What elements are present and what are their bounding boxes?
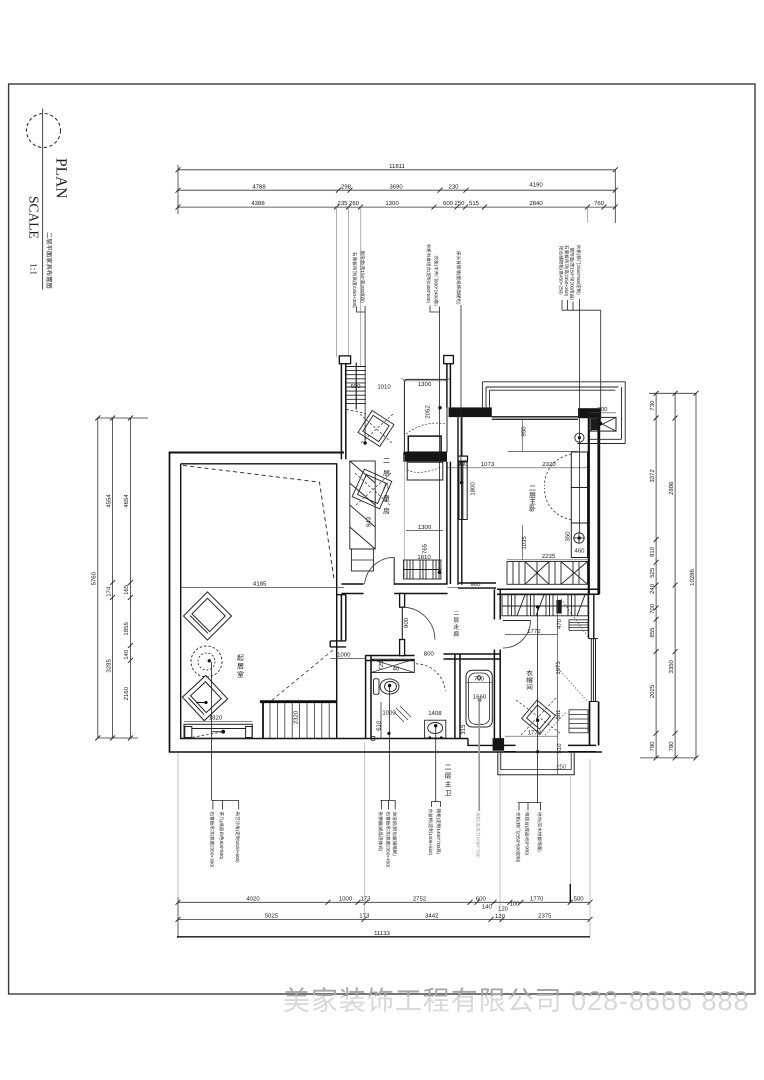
svg-text:350: 350	[564, 531, 571, 542]
svg-text:3350: 3350	[668, 659, 675, 673]
svg-text:120: 120	[498, 906, 509, 913]
svg-text:1000: 1000	[337, 652, 351, 659]
svg-text:梳妆台(成品450*900): 梳妆台(成品450*900)	[524, 812, 529, 856]
svg-text:10286: 10286	[689, 568, 696, 585]
svg-text:PLAN: PLAN	[53, 158, 70, 198]
svg-text:600: 600	[443, 200, 454, 207]
svg-text:2886: 2886	[668, 481, 675, 495]
svg-text:1820: 1820	[209, 715, 223, 722]
svg-text:900: 900	[403, 617, 410, 628]
svg-text:2052: 2052	[424, 405, 431, 419]
svg-text:二层平面家具布置图: 二层平面家具布置图	[45, 232, 53, 289]
svg-text:4654: 4654	[123, 494, 130, 508]
svg-text:250: 250	[556, 763, 567, 770]
svg-text:1300: 1300	[418, 381, 432, 388]
svg-text:298: 298	[341, 183, 352, 190]
svg-text:石膏板吊顶(高2350+350): 石膏板吊顶(高2350+350)	[564, 245, 569, 297]
svg-text:515: 515	[469, 200, 480, 207]
svg-text:床头背景墙(壁纸饰面硬包): 床头背景墙(壁纸饰面硬包)	[456, 251, 461, 305]
svg-text:900: 900	[470, 581, 481, 588]
svg-text:1408: 1408	[428, 710, 442, 717]
svg-text:镜柜(定制1408*700高): 镜柜(定制1408*700高)	[436, 809, 441, 855]
svg-text:衣柜(移门2550*600定制): 衣柜(移门2550*600定制)	[516, 812, 521, 863]
svg-text:茶几(成品白色800*800): 茶几(成品白色800*800)	[219, 812, 224, 860]
svg-text:240: 240	[649, 583, 656, 594]
svg-text:315: 315	[460, 724, 467, 735]
svg-text:460: 460	[574, 548, 585, 555]
svg-text:1300: 1300	[418, 524, 432, 531]
svg-text:石膏板吊顶(高度2350+300): 石膏板吊顶(高度2350+300)	[209, 812, 214, 868]
svg-text:二层主卫: 二层主卫	[445, 765, 452, 798]
svg-text:600: 600	[597, 406, 608, 413]
svg-text:3690: 3690	[389, 183, 403, 190]
svg-text:800: 800	[424, 651, 435, 658]
svg-text:2025: 2025	[649, 684, 656, 698]
svg-text:衣帽间: 衣帽间	[526, 670, 533, 692]
svg-text:1075: 1075	[555, 661, 562, 675]
svg-text:1035: 1035	[521, 536, 528, 550]
svg-text:610: 610	[375, 720, 382, 731]
svg-text:725: 725	[378, 660, 385, 671]
svg-text:书柜书桌组合(定制2300*600): 书柜书桌组合(定制2300*600)	[426, 244, 431, 304]
svg-text:4020: 4020	[246, 895, 260, 902]
svg-text:1:1: 1:1	[28, 263, 38, 275]
svg-text:台盆柜(定制1408+550): 台盆柜(定制1408+550)	[428, 809, 433, 856]
svg-text:510: 510	[556, 743, 563, 754]
svg-text:1772: 1772	[527, 628, 541, 635]
svg-text:2752: 2752	[413, 895, 427, 902]
svg-text:760: 760	[594, 200, 605, 207]
svg-text:700: 700	[649, 603, 656, 614]
svg-text:230: 230	[448, 183, 459, 190]
svg-text:855: 855	[649, 627, 656, 638]
svg-text:布艺沙发(定制1820+600): 布艺沙发(定制1820+600)	[235, 812, 240, 864]
svg-text:SCALE: SCALE	[27, 196, 42, 239]
svg-text:1073: 1073	[481, 461, 495, 468]
svg-text:4185: 4185	[253, 581, 267, 588]
svg-text:140: 140	[123, 649, 130, 660]
svg-text:765: 765	[421, 543, 428, 554]
svg-text:4554: 4554	[105, 494, 112, 508]
svg-text:地台(实木地板饰面): 地台(实木地板饰面)	[537, 812, 542, 852]
svg-text:2235: 2235	[542, 553, 556, 560]
svg-text:阳台储物柜(高450+250): 阳台储物柜(高450+250)	[558, 246, 563, 295]
svg-text:石膏板吊顶(高度2350+450): 石膏板吊顶(高度2350+450)	[385, 812, 390, 868]
svg-text:600: 600	[350, 383, 361, 390]
svg-text:470: 470	[556, 618, 563, 629]
svg-text:二层儿童房: 二层儿童房	[383, 458, 390, 515]
svg-text:1000: 1000	[339, 895, 353, 902]
svg-text:881: 881	[555, 709, 562, 720]
svg-text:二层走廊: 二层走廊	[453, 610, 459, 638]
svg-text:140: 140	[482, 903, 493, 910]
svg-text:2320: 2320	[542, 461, 556, 468]
svg-text:石膏板吊顶(高度2350+300): 石膏板吊顶(高度2350+300)	[352, 252, 357, 308]
svg-text:1772: 1772	[528, 729, 542, 736]
svg-text:衣柜(平开门600*2400高): 衣柜(平开门600*2400高)	[434, 256, 439, 307]
svg-text:2160: 2160	[123, 686, 130, 700]
svg-text:780: 780	[668, 741, 675, 752]
svg-text:235: 235	[337, 200, 348, 207]
svg-text:165: 165	[123, 584, 130, 595]
svg-text:4788: 4788	[252, 183, 266, 190]
svg-text:2320: 2320	[293, 710, 300, 724]
svg-text:二层主卧: 二层主卧	[529, 486, 536, 513]
svg-text:11133: 11133	[374, 930, 390, 937]
svg-text:40: 40	[393, 666, 400, 673]
svg-text:730: 730	[649, 400, 656, 411]
svg-text:1800: 1800	[470, 482, 477, 496]
svg-text:1810: 1810	[417, 554, 431, 561]
svg-text:100: 100	[509, 901, 520, 908]
svg-text:窗帘盒(宽150*高200成品): 窗帘盒(宽150*高200成品)	[360, 251, 365, 304]
svg-text:3442: 3442	[425, 912, 439, 919]
svg-text:950: 950	[521, 426, 528, 437]
svg-text:500: 500	[574, 895, 585, 902]
svg-text:1770: 1770	[530, 895, 544, 902]
svg-text:4388: 4388	[251, 200, 265, 207]
svg-text:810: 810	[649, 546, 656, 557]
svg-text:淋浴房(钢化玻璃隔断): 淋浴房(钢化玻璃隔断)	[392, 812, 397, 857]
svg-text:浴缸(亚克力1660*700): 浴缸(亚克力1660*700)	[475, 812, 480, 858]
svg-text:坐便器(成品连体式): 坐便器(成品连体式)	[378, 812, 383, 852]
svg-text:11811: 11811	[389, 163, 405, 170]
svg-text:窗帘盒(宽150*深200成品): 窗帘盒(宽150*深200成品)	[569, 248, 574, 301]
svg-text:943: 943	[366, 516, 373, 527]
svg-text:1855: 1855	[123, 622, 130, 636]
svg-text:525: 525	[649, 567, 656, 578]
svg-text:120: 120	[495, 913, 506, 920]
svg-text:3285: 3285	[105, 659, 112, 673]
svg-text:4190: 4190	[529, 182, 543, 189]
svg-text:起居室: 起居室	[237, 654, 244, 679]
svg-text:260: 260	[349, 200, 360, 207]
svg-text:1300: 1300	[385, 200, 399, 207]
svg-text:2375: 2375	[538, 912, 552, 919]
svg-text:700: 700	[474, 676, 485, 683]
svg-text:1010: 1010	[377, 384, 391, 391]
svg-text:250: 250	[454, 200, 465, 207]
svg-text:174: 174	[105, 586, 112, 597]
svg-text:600: 600	[476, 895, 487, 902]
svg-text:780: 780	[649, 741, 656, 752]
svg-text:173: 173	[360, 895, 371, 902]
svg-text:5025: 5025	[265, 912, 279, 919]
svg-text:2840: 2840	[529, 200, 543, 207]
svg-text:衣柜(移门2550*600定制): 衣柜(移门2550*600定制)	[576, 245, 581, 296]
svg-text:3372: 3372	[649, 469, 656, 483]
svg-text:5760: 5760	[91, 571, 98, 585]
